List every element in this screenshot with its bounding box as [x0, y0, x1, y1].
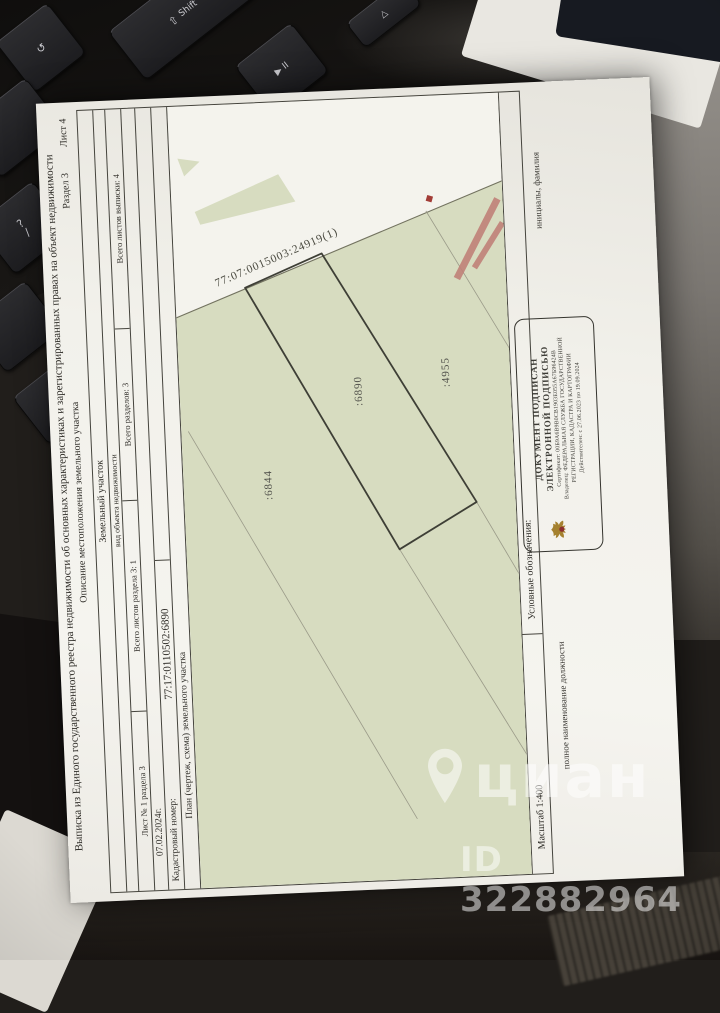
key-slash-label: / — [23, 227, 33, 238]
shift-icon: ⇧ — [166, 13, 181, 29]
watermark-id: ID 322882964 — [460, 840, 720, 920]
signature-name-caption: инициалы, фамилия — [530, 152, 543, 229]
section-label: Раздел 3 — [60, 173, 73, 209]
play-pause-icon: ▶ II — [273, 60, 291, 77]
parcel-label-right: :4955 — [439, 357, 452, 388]
key-shift-label: Shift — [177, 0, 199, 19]
watermark-brand: циан — [474, 750, 650, 804]
section-sheet-labels: Раздел 3Лист 4 — [58, 118, 73, 209]
parcel-label-subject: :6890 — [352, 376, 365, 407]
digital-signature-stamp: ДОКУМЕНТ ПОДПИСАН ЭЛЕКТРОННОЙ ПОДПИСЬЮ С… — [514, 316, 604, 553]
arrow-up-icon: △ — [378, 8, 390, 20]
undo-icon: ↺ — [33, 40, 48, 56]
sheet-label: Лист 4 — [58, 118, 70, 147]
cian-watermark: циан — [428, 748, 650, 804]
map-pin-icon — [428, 748, 462, 804]
parcel-label-left: :6844 — [262, 470, 275, 501]
coat-of-arms-icon — [547, 516, 578, 543]
